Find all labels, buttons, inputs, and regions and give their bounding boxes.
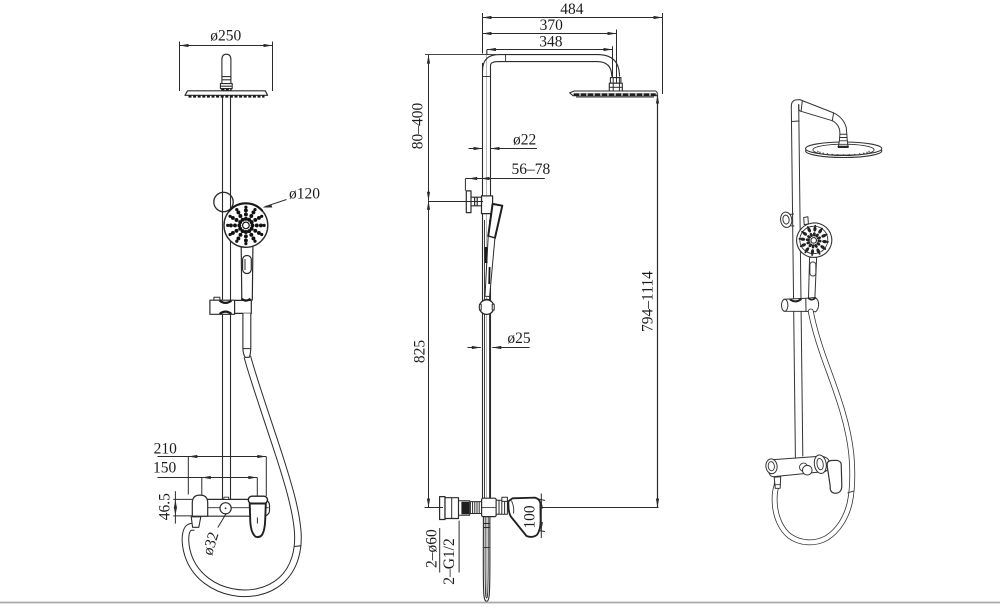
svg-text:ø120: ø120 [289,185,320,202]
svg-text:794–1114: 794–1114 [639,271,656,332]
svg-text:ø22: ø22 [513,132,536,149]
svg-text:ø250: ø250 [210,27,241,44]
svg-text:348: 348 [539,34,563,51]
svg-text:ø25: ø25 [507,330,531,347]
svg-text:46.5: 46.5 [157,493,174,520]
svg-text:80–400: 80–400 [410,103,427,150]
svg-text:484: 484 [560,1,584,18]
svg-text:150: 150 [153,460,177,477]
svg-text:56–78: 56–78 [512,161,551,178]
svg-text:825: 825 [412,340,429,364]
svg-text:2–G1/2: 2–G1/2 [441,538,458,585]
svg-text:370: 370 [540,17,564,34]
svg-text:100: 100 [521,505,538,529]
svg-text:210: 210 [154,441,178,458]
svg-text:2–ø60: 2–ø60 [424,529,441,568]
